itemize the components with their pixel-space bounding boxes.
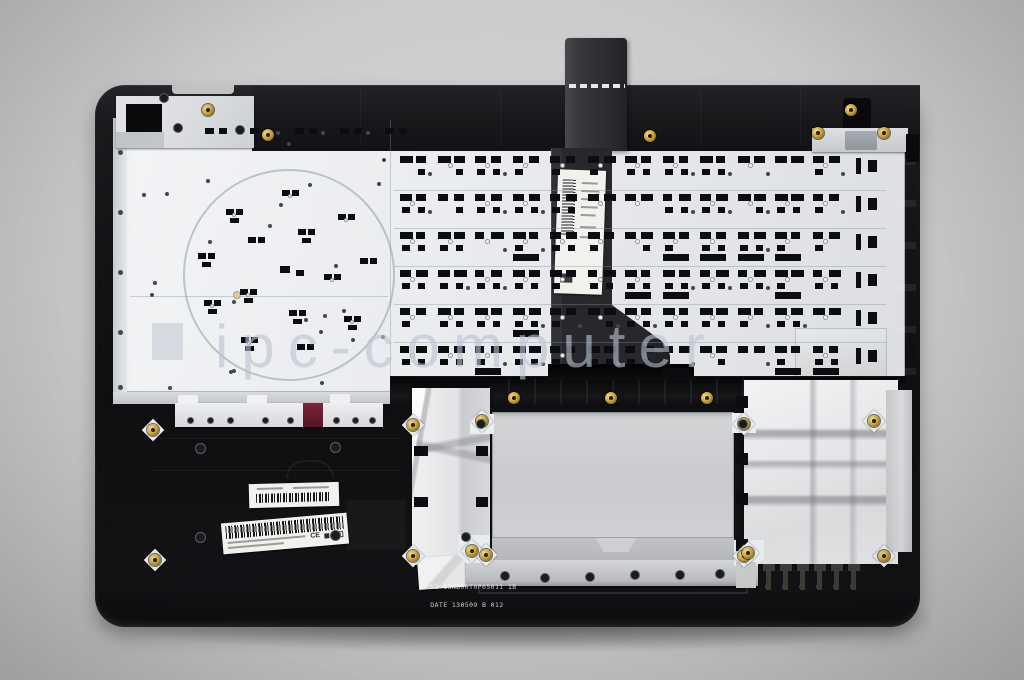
label-text-line — [581, 214, 596, 217]
cert-mark-icon — [334, 531, 343, 538]
foil-shield-right — [744, 380, 898, 564]
label-text-line — [257, 487, 283, 490]
bracket-end-tab — [736, 562, 756, 588]
label-text-line — [580, 236, 593, 238]
rim-seam — [360, 90, 361, 146]
molded-arc — [286, 460, 334, 478]
label-text-line — [293, 486, 329, 489]
molded-panel — [346, 500, 406, 550]
label-text-line — [581, 198, 595, 200]
label-cert-icon — [560, 273, 572, 282]
molded-line — [150, 470, 400, 471]
molded-line — [160, 438, 400, 439]
gold-rivet — [234, 292, 240, 298]
corner-tab — [470, 414, 494, 434]
clip-through-foil — [476, 497, 488, 507]
clip-through-foil — [476, 446, 488, 456]
watermark: ipc-computer — [215, 312, 718, 381]
foil-right-fold — [886, 390, 912, 552]
part-number-stamp: S2 13NB00T0P05011 1B DATE 130509 B 012 — [413, 574, 517, 619]
label-text-line — [581, 190, 599, 193]
shell-right-ladder — [896, 158, 916, 390]
rim-seam — [800, 90, 801, 146]
plate-tab-strip — [175, 403, 383, 427]
rim-seam — [500, 90, 501, 146]
hinge-tab-right — [906, 134, 919, 162]
small-sticker-barcode — [256, 492, 330, 503]
hinge-post-right — [843, 98, 871, 132]
hinge-bracket-right-recess — [845, 131, 877, 150]
clip-through-foil — [414, 446, 428, 456]
ribbon-cable-strap — [565, 38, 627, 151]
top-notch — [172, 85, 234, 94]
cert-square-icon — [324, 533, 329, 538]
label-text-line — [581, 206, 598, 209]
cable-label-barcode — [561, 179, 576, 235]
plate-seam — [130, 296, 388, 297]
tape-patch — [795, 328, 887, 378]
clip-through-foil — [736, 493, 748, 505]
rim-seam — [700, 90, 701, 146]
stamp-line-1: S2 13NB00T0P05011 1B — [430, 583, 516, 591]
cable-label — [554, 169, 606, 295]
stamp-line-2: DATE 130509 B 012 — [430, 601, 503, 609]
clip-through-foil — [736, 396, 748, 408]
clip-through-foil — [736, 453, 748, 465]
label-text-line — [582, 182, 598, 185]
product-photo: CE S2 13NB00T0P05011 1B DATE 130509 B 01… — [0, 0, 1024, 680]
watermark-logo-icon — [152, 323, 183, 360]
ce-mark: CE — [310, 532, 320, 540]
label-text-line — [580, 226, 596, 229]
barcode-sticker-small — [249, 482, 340, 508]
magenta-chip — [303, 403, 323, 427]
corner-tab — [458, 535, 490, 563]
clip-through-foil — [736, 539, 748, 551]
hinge-bracket-left-step — [116, 132, 164, 148]
touchpad-backplate — [492, 412, 734, 538]
clip-through-foil — [414, 497, 428, 507]
cable-tape-dashes — [569, 84, 625, 88]
plate-left-edge — [113, 118, 127, 392]
